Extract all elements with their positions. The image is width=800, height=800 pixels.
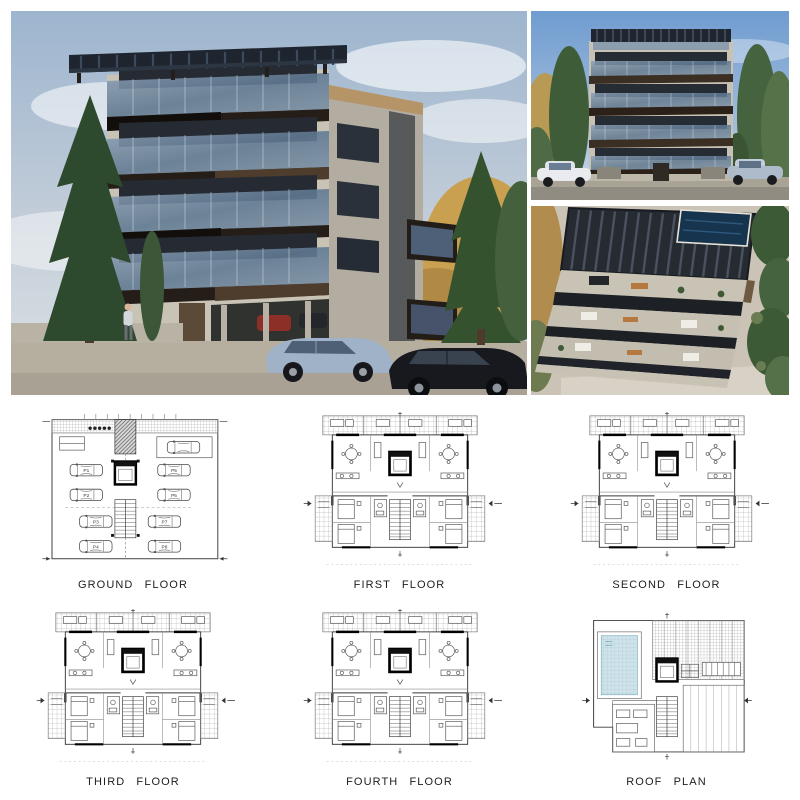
svg-text:P4: P4 [93,544,99,550]
front-elevation-graphic [531,11,789,200]
cypress-tree [140,231,164,341]
svg-text:P3: P3 [93,519,99,525]
aerial-graphic [531,206,789,395]
building [535,208,755,388]
building [589,29,733,181]
render-street-perspective [11,11,527,395]
svg-text:P6: P6 [171,493,177,499]
plan-fourth-floor: FOURTH FLOOR [266,599,533,796]
plan-label: GROUND FLOOR [78,579,188,591]
plan-label: FOURTH FLOOR [346,776,453,788]
black-car [389,348,527,395]
plan-roof: ROOF PLAN [533,599,800,796]
roof-pool [677,210,751,246]
street-perspective-graphic [11,11,527,395]
plan-first-floor: FIRST FLOOR [266,402,533,599]
svg-text:P5: P5 [171,468,177,474]
plan-label: ROOF PLAN [626,776,706,788]
plan-label: FIRST FLOOR [354,579,446,591]
render-front-elevation [531,11,789,200]
svg-text:P1: P1 [83,468,89,474]
plan-third-floor: THIRD FLOOR [0,599,266,796]
svg-text:P8: P8 [162,544,168,550]
svg-text:P7: P7 [162,519,168,525]
road [531,187,789,200]
balcony-levels [589,52,733,176]
plan-label: THIRD FLOOR [86,776,180,788]
roof-plan-drawing [549,609,785,771]
roof-pool [597,632,641,699]
plan-label: SECOND FLOOR [612,579,720,591]
roof-pergola [591,29,731,42]
ground-floor-drawing: P1 P2 P3 P4 P5 P6 P7 P8 [15,412,251,574]
floor-plans-grid: P1 P2 P3 P4 P5 P6 P7 P8 [0,402,800,800]
second-floor-drawing [549,412,785,574]
balcony-levels [107,57,329,305]
svg-text:P2: P2 [83,493,89,499]
entrance-door [653,163,669,181]
first-floor-drawing [282,412,518,574]
fourth-floor-drawing [282,609,518,771]
plan-ground-floor: P1 P2 P3 P4 P5 P6 P7 P8 [0,402,266,599]
plan-second-floor: SECOND FLOOR [533,402,800,599]
third-floor-drawing [15,609,251,771]
presentation-board: P1 P2 P3 P4 P5 P6 P7 P8 [0,0,800,800]
render-aerial-balconies [531,206,789,395]
pilotis-parking [179,299,329,341]
